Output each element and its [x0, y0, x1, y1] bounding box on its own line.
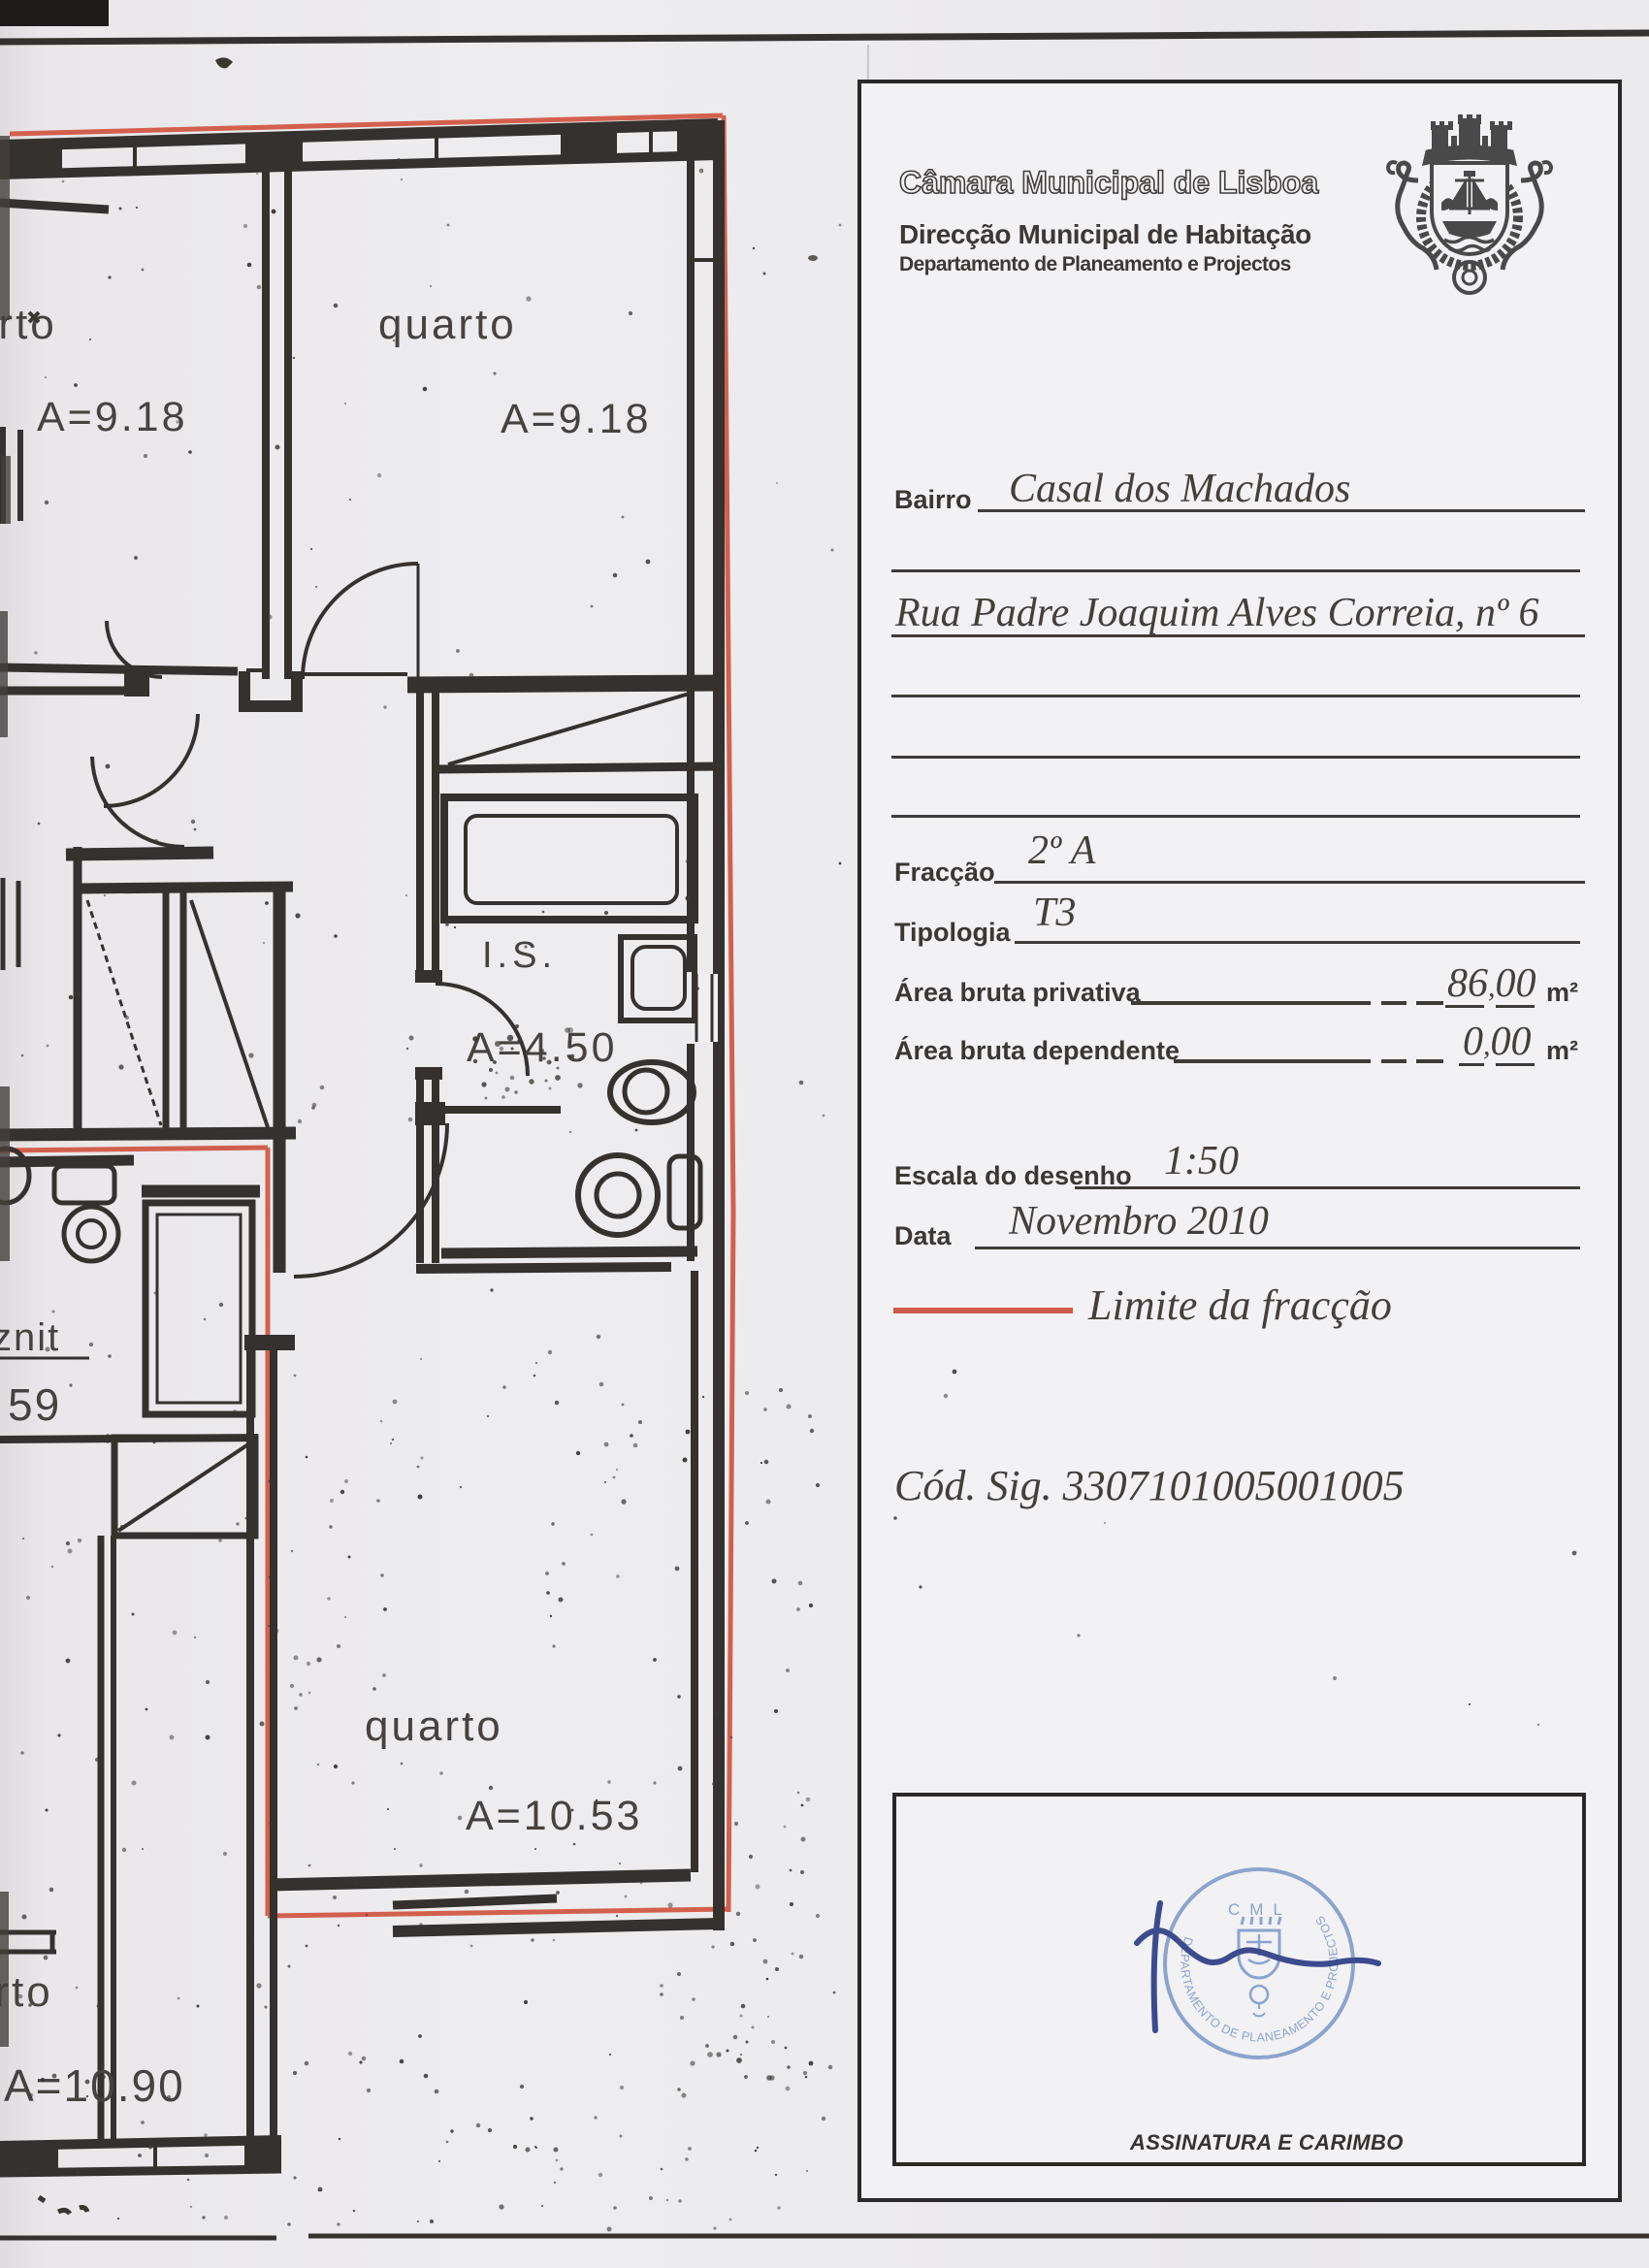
- svg-text:A=10.53: A=10.53: [466, 1793, 642, 1839]
- svg-text:znit: znit: [0, 1316, 60, 1359]
- svg-text:quarto: quarto: [365, 1702, 503, 1750]
- svg-text:A=9.18: A=9.18: [501, 396, 651, 442]
- svg-text:59: 59: [8, 1379, 61, 1430]
- svg-text:I.S.: I.S.: [482, 935, 557, 976]
- svg-text:A=10.90: A=10.90: [4, 2060, 185, 2111]
- svg-text:quarto: quarto: [378, 301, 517, 348]
- svg-text:CML: CML: [1228, 1900, 1292, 1919]
- svg-text:A=9.18: A=9.18: [37, 394, 187, 440]
- svg-text:A=4.50: A=4.50: [467, 1024, 617, 1071]
